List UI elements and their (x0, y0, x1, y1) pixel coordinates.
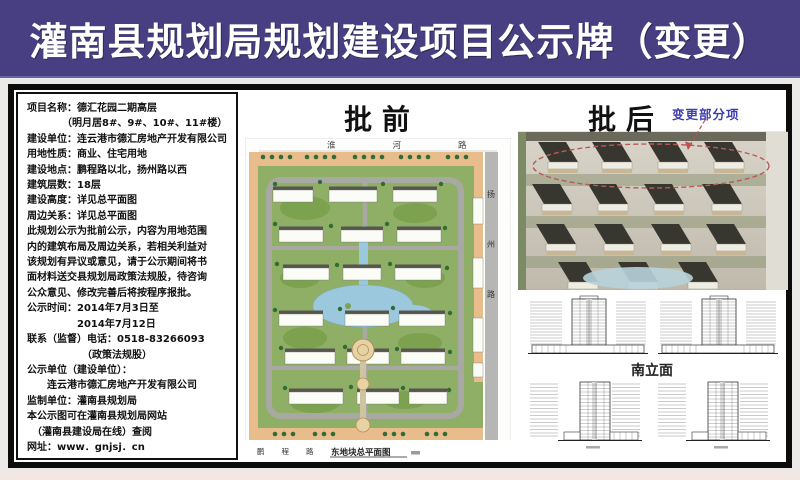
info-line: 本公示图可在灌南县规划局网站 (27, 409, 228, 424)
info-line: 用地性质：商业、住宅用地 (27, 147, 228, 162)
info-line: 2014年7月12日 (27, 317, 228, 332)
info-line: 连云港市德汇房地产开发有限公司 (27, 378, 228, 393)
aerial-render-image (518, 118, 788, 290)
info-line: 建设高度：详见总平面图 (27, 193, 228, 208)
content-frame: 项目名称：德汇花园二期高层 （明月居8#、9#、10#、11#楼） 建设单位：连… (8, 84, 792, 468)
info-line: 公示时间：2014年7月3日至 (27, 301, 228, 316)
plan-caption: 东地块总平面图 (331, 447, 391, 458)
info-line: （政策法规股） (27, 348, 228, 363)
info-line: 内的建筑布局及周边关系，若相关利益对 (27, 240, 228, 255)
bottom-strip (0, 472, 800, 480)
right-road: 扬州路 (485, 152, 498, 440)
info-line: 周边关系：详见总平面图 (27, 209, 228, 224)
road-label-bottom: 鹏程路 (257, 446, 331, 456)
tower-elevation-drawings (528, 380, 778, 454)
info-line: 该规划有异议或意见，请于公示期间将书 (27, 255, 228, 270)
road-label-top: 淮河路 (327, 140, 511, 151)
info-panel: 项目名称：德汇花园二期高层 （明月居8#、9#、10#、11#楼） 建设单位：连… (16, 92, 238, 460)
info-line: （明月居8#、9#、10#、11#楼） (27, 116, 228, 131)
board-title: 灌南县规划局规划建设项目公示牌（变更） (29, 11, 770, 66)
info-line: 项目名称：德汇花园二期高层 (27, 101, 228, 116)
elevation-caption: 南立面 (516, 360, 788, 380)
before-title: 批 前 (238, 98, 516, 138)
site-plan-image: 淮河路 (245, 138, 511, 460)
south-elevation-drawings (528, 294, 778, 358)
info-line: 网址：www．gnjsj．cn (27, 440, 228, 455)
after-panel: 批 后 变更部分项 (516, 90, 788, 462)
info-line: 建设单位：连云港市德汇房地产开发有限公司 (27, 132, 228, 147)
notice-board: 灌南县规划局规划建设项目公示牌（变更） 项目名称：德汇花园二期高层 （明月居8#… (0, 0, 800, 480)
header-banner: 灌南县规划局规划建设项目公示牌（变更） (0, 0, 800, 78)
info-line: 公众意见、修改完善后将按程序报批。 (27, 286, 228, 301)
info-line: （灌南县建设局在线）查阅 (27, 425, 228, 440)
info-line: 建筑层数：18层 (27, 178, 228, 193)
info-line: 面材料送交县规划局政策法规股，待咨询 (27, 270, 228, 285)
road-label-right: 扬州路 (487, 189, 496, 340)
before-panel: 批 前 淮河路 (238, 90, 516, 462)
info-line: 建设地点：鹏程路以北，扬州路以西 (27, 163, 228, 178)
green-strip (518, 132, 526, 290)
pond (583, 267, 693, 289)
road-strip (766, 132, 788, 290)
info-line: 公示单位（建设单位）： (27, 363, 228, 378)
info-line: 联系（监督）电话：0518-83266093 (27, 332, 228, 347)
info-line: 此规划公示为批前公示，内容为用地范围 (27, 224, 228, 239)
info-line: 监制单位：灌南县规划局 (27, 394, 228, 409)
plan-caption-band: 鹏程路 东地块总平面图 (245, 440, 511, 460)
